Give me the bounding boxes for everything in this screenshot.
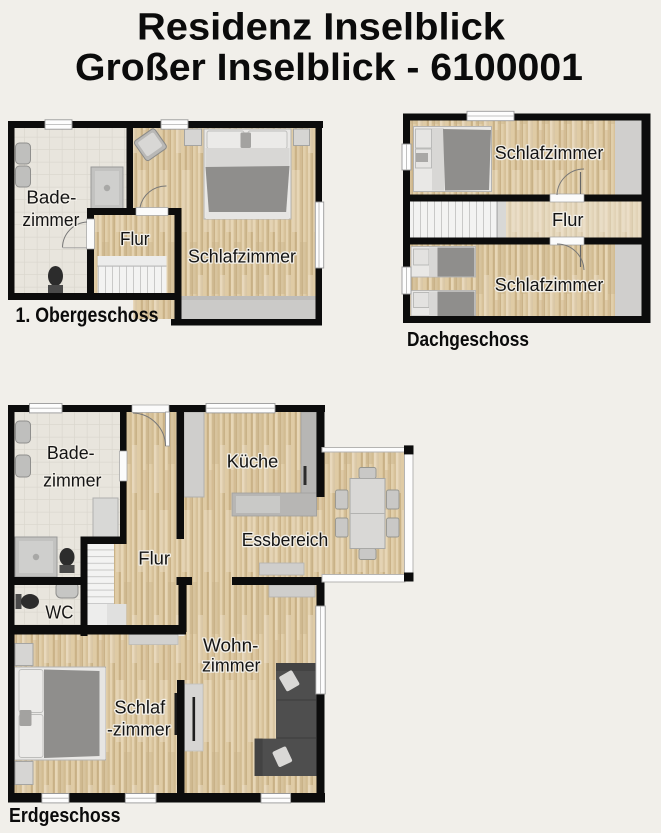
svg-text:Schlaf: Schlaf	[114, 697, 166, 718]
svg-text:Erdgeschoss: Erdgeschoss	[9, 805, 121, 827]
svg-text:Küche: Küche	[227, 451, 279, 472]
svg-text:1. Obergeschoss: 1. Obergeschoss	[16, 303, 159, 327]
svg-text:zimmer: zimmer	[43, 470, 101, 491]
svg-text:Großer Inselblick - 6100001: Großer Inselblick - 6100001	[75, 47, 583, 89]
svg-text:Schlafzimmer: Schlafzimmer	[495, 142, 604, 163]
svg-text:zimmer: zimmer	[202, 655, 261, 676]
svg-text:zimmer: zimmer	[22, 209, 79, 230]
svg-text:Residenz Inselblick: Residenz Inselblick	[137, 7, 506, 49]
svg-text:Schlafzimmer: Schlafzimmer	[495, 274, 604, 295]
svg-text:Dachgeschoss: Dachgeschoss	[407, 329, 529, 351]
svg-text:Bade-: Bade-	[47, 442, 95, 463]
svg-text:-zimmer: -zimmer	[107, 719, 171, 740]
svg-text:Flur: Flur	[120, 228, 150, 249]
svg-text:Flur: Flur	[138, 548, 170, 569]
svg-text:Essbereich: Essbereich	[242, 529, 329, 550]
svg-text:Flur: Flur	[552, 209, 584, 230]
svg-text:Schlafzimmer: Schlafzimmer	[188, 246, 296, 267]
svg-text:Bade-: Bade-	[26, 187, 76, 208]
svg-text:Wohn-: Wohn-	[203, 635, 258, 656]
svg-text:WC: WC	[45, 602, 73, 623]
